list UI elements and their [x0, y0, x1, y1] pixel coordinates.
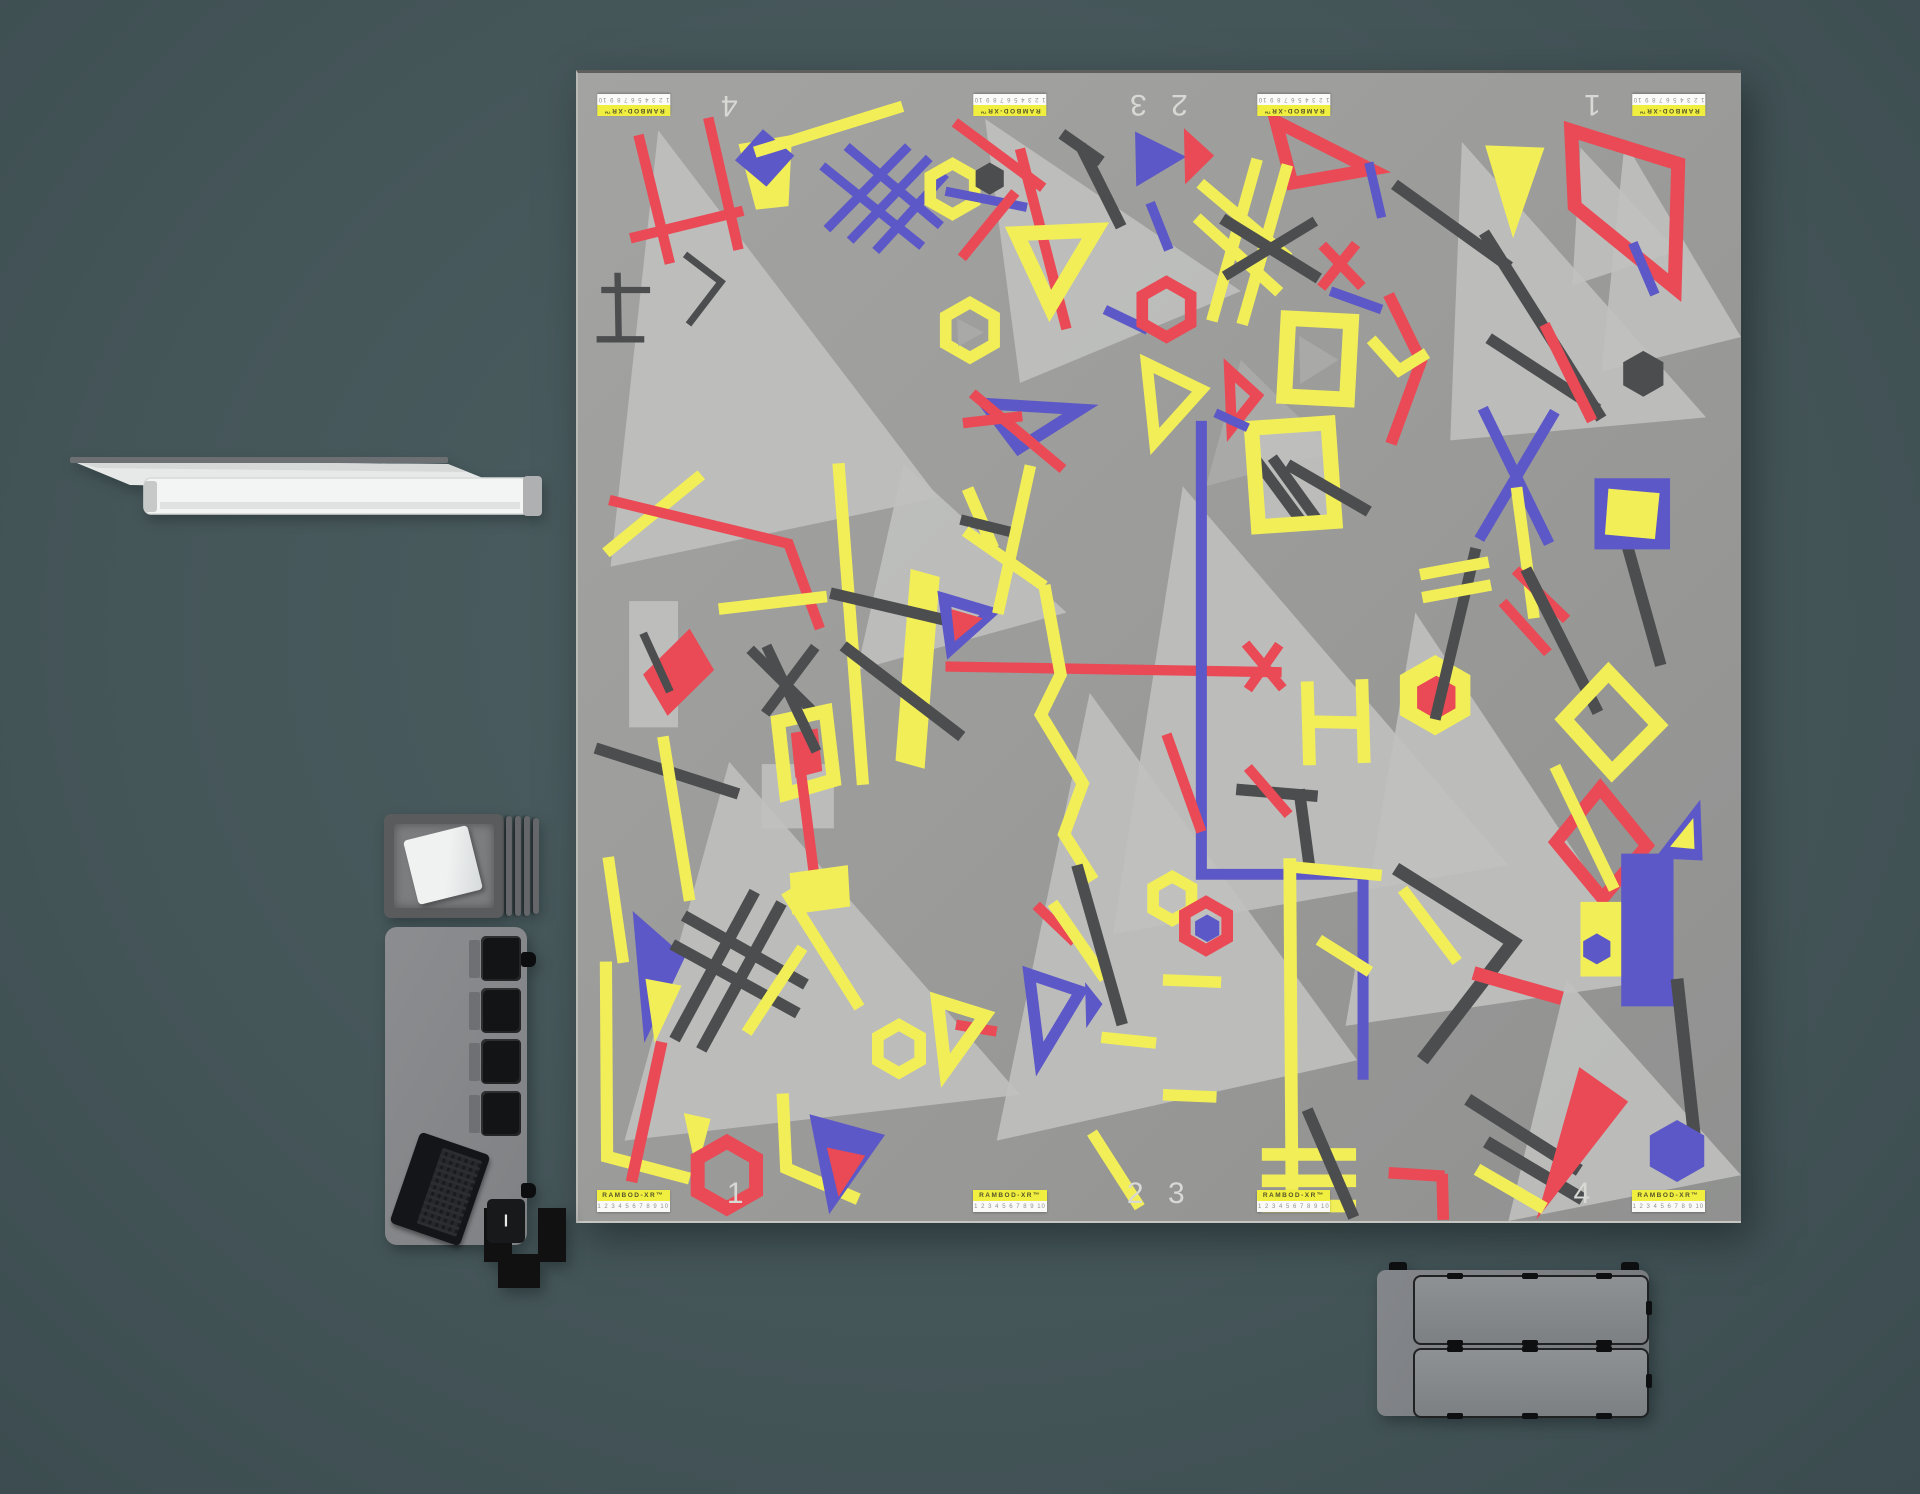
- shape-line: [1101, 1037, 1156, 1043]
- shape-line: [755, 106, 903, 152]
- case-latch: [1522, 1346, 1538, 1352]
- shape-line: [1389, 1173, 1445, 1176]
- chip-label: I: [504, 1211, 508, 1231]
- ruler-strip: RAMBOD-XR™1 2 3 4 5 6 7 8 9 10: [1257, 94, 1330, 116]
- panel-edge: [506, 816, 512, 916]
- side-knob: [521, 952, 536, 967]
- equipment-case[interactable]: [1413, 1348, 1649, 1418]
- stacked-panels[interactable]: [384, 810, 540, 922]
- shape-polyo: [1564, 672, 1658, 772]
- shape-line: [608, 857, 623, 963]
- mat-number: 2 3: [1122, 87, 1188, 121]
- shape-poly: [1670, 818, 1694, 849]
- laptop[interactable]: [389, 1132, 490, 1247]
- case-latch: [1447, 1346, 1463, 1352]
- mat-number: 4: [713, 88, 738, 122]
- ruler-strip: RAMBOD-XR™1 2 3 4 5 6 7 8 9 10: [1632, 1190, 1705, 1212]
- black-device[interactable]: [481, 1091, 521, 1136]
- side-knob: [521, 1183, 536, 1198]
- shape-line: [1422, 585, 1491, 598]
- mat-number: 1: [727, 1177, 752, 1211]
- case-latch: [1596, 1273, 1612, 1279]
- device-arm: [469, 1043, 480, 1081]
- case-latch: [1646, 1301, 1652, 1315]
- scene: RAMBOD-XR™1 2 3 4 5 6 7 8 9 10 RAMBOD-XR…: [0, 0, 1920, 1494]
- panel-edge: [515, 816, 521, 916]
- chip-device[interactable]: I: [487, 1199, 525, 1243]
- ruler-tick-row: 1 2 3 4 5 6 7 8 9 10: [597, 94, 670, 105]
- laptop-keyboard: [417, 1148, 483, 1237]
- shape-polyo: [1147, 363, 1202, 441]
- shape-line: [946, 667, 1282, 673]
- shape-poly: [1621, 854, 1673, 1007]
- shape-poly: [1605, 489, 1660, 540]
- shape-line: [663, 737, 690, 901]
- mat-artwork: [578, 73, 1741, 1221]
- case-latch: [1447, 1413, 1463, 1419]
- ruler-strip: RAMBOD-XR™1 2 3 4 5 6 7 8 9 10: [597, 1190, 670, 1212]
- shape-line: [1306, 722, 1365, 723]
- calibration-mat[interactable]: RAMBOD-XR™1 2 3 4 5 6 7 8 9 10 RAMBOD-XR…: [576, 70, 1741, 1223]
- shape-line: [1442, 1174, 1443, 1220]
- ruler-strip: RAMBOD-XR™1 2 3 4 5 6 7 8 9 10: [1632, 94, 1705, 116]
- ruler-brand-label: RAMBOD-XR™: [597, 105, 670, 116]
- shape-poly: [1135, 132, 1186, 187]
- ruler-strip: RAMBOD-XR™1 2 3 4 5 6 7 8 9 10: [973, 1190, 1046, 1212]
- whiteboard-shelf[interactable]: [68, 450, 550, 526]
- black-device[interactable]: [481, 988, 521, 1033]
- case-latch: [1522, 1413, 1538, 1419]
- equipment-case[interactable]: [1413, 1275, 1649, 1345]
- case-latch: [1646, 1374, 1652, 1388]
- case-latch: [1596, 1346, 1612, 1352]
- shape-poly: [1184, 128, 1214, 184]
- equipment-console[interactable]: I: [385, 927, 527, 1245]
- case-latch: [1447, 1273, 1463, 1279]
- case-latch: [1596, 1413, 1612, 1419]
- mat-number: 1: [1576, 87, 1601, 121]
- shape-poly: [957, 319, 984, 347]
- shape-line: [1330, 291, 1381, 309]
- panel-edge: [533, 818, 539, 914]
- device-arm: [469, 992, 480, 1030]
- black-device[interactable]: [481, 1039, 521, 1084]
- shape-line: [618, 273, 619, 341]
- case-table[interactable]: [1377, 1262, 1649, 1418]
- shape-line: [1420, 562, 1489, 575]
- panel-edge: [524, 816, 530, 916]
- ruler-strip: RAMBOD-XR™1 2 3 4 5 6 7 8 9 10: [1257, 1190, 1330, 1212]
- case-latch: [1522, 1273, 1538, 1279]
- whiteboard-graphic: [68, 450, 550, 526]
- ruler-strip: RAMBOD-XR™1 2 3 4 5 6 7 8 9 10: [973, 94, 1046, 116]
- shape-poly: [1655, 800, 1703, 861]
- mat-number: 4: [1574, 1177, 1599, 1211]
- shape-line: [1163, 980, 1221, 982]
- device-arm: [469, 1095, 480, 1133]
- ruler-strip: RAMBOD-XR™1 2 3 4 5 6 7 8 9 10: [597, 94, 670, 116]
- shape-line: [1163, 1095, 1216, 1097]
- shape-poly: [1299, 336, 1339, 384]
- mat-number: 2 3: [1127, 1177, 1193, 1211]
- device-arm: [469, 940, 480, 978]
- black-device[interactable]: [481, 936, 521, 981]
